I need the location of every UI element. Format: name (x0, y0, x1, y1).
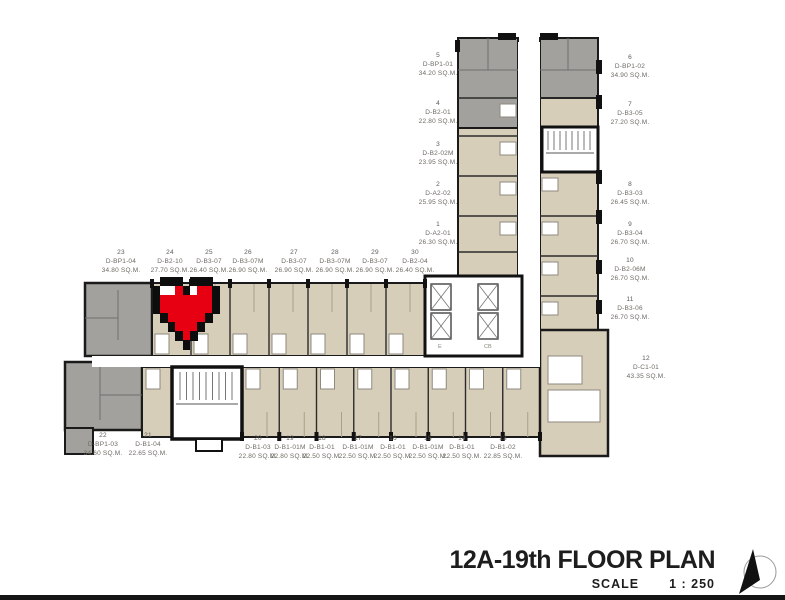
unit-no: 22 (71, 432, 135, 441)
core-secondary-label: CB (484, 344, 492, 350)
unit-code: D-B1-03 (226, 444, 290, 453)
unit-area: 23.95 SQ.M. (406, 159, 470, 168)
unit-no: 6 (598, 54, 662, 63)
unit-label: 30D-B2-0426.40 SQ.M. (383, 249, 447, 275)
unit-no: 1 (406, 221, 470, 230)
unit-label: 12D-C1-0143.35 SQ.M. (614, 355, 678, 381)
unit-no: 30 (383, 249, 447, 258)
bottom-divider (0, 595, 785, 600)
unit-area: 34.20 SQ.M. (406, 70, 470, 79)
unit-no: 20 (226, 435, 290, 444)
unit-code: D-BP1-02 (598, 63, 662, 72)
unit-area: 27.20 SQ.M. (598, 119, 662, 128)
unit-no: 9 (598, 221, 662, 230)
unit-label: 1D-A2-0126.30 SQ.M. (406, 221, 470, 247)
scale-label: SCALE (592, 577, 639, 591)
unit-22-block (65, 362, 142, 430)
unit-area: 22.80 SQ.M. (226, 453, 290, 462)
unit-label: 9D-B3-0426.70 SQ.M. (598, 221, 662, 247)
unit-label: 2D-A2-0225.95 SQ.M. (406, 181, 470, 207)
unit-label: 20D-B1-0322.80 SQ.M. (226, 435, 290, 461)
unit-no: 11 (598, 296, 662, 305)
unit-label: 11D-B3-0626.70 SQ.M. (598, 296, 662, 322)
unit-code: D-C1-01 (614, 364, 678, 373)
unit-label: 8D-B3-0326.45 SQ.M. (598, 181, 662, 207)
unit-area: 22.80 SQ.M. (406, 118, 470, 127)
unit-area: 26.70 SQ.M. (598, 275, 662, 284)
unit-label: 10D-B2-06M26.70 SQ.M. (598, 257, 662, 283)
unit-no: 3 (406, 141, 470, 150)
unit-area: 26.70 SQ.M. (598, 239, 662, 248)
core-elevator-label: E (438, 344, 442, 350)
selected-unit-heart-marker[interactable] (153, 277, 220, 349)
unit-code: D-BP1-01 (406, 61, 470, 70)
unit-code: D-B3-05 (598, 110, 662, 119)
page-title: 12A-19th FLOOR PLAN (430, 546, 715, 575)
unit-no: 8 (598, 181, 662, 190)
unit-label: 7D-B3-0527.20 SQ.M. (598, 101, 662, 127)
plan-title-block: 12A-19th FLOOR PLAN SCALE1 : 250 (430, 546, 715, 591)
unit-no: 5 (406, 52, 470, 61)
unit-area: 34.60 SQ.M. (71, 450, 135, 459)
unit-area: 25.95 SQ.M. (406, 199, 470, 208)
unit-no: 2 (406, 181, 470, 190)
unit-label: 4D-B2-0122.80 SQ.M. (406, 100, 470, 126)
unit-code: D-A2-01 (406, 230, 470, 239)
unit-code: D-B3-06 (598, 305, 662, 314)
north-arrow-icon (731, 547, 783, 599)
unit-area: 43.35 SQ.M. (614, 373, 678, 382)
unit-code: D-B2-06M (598, 266, 662, 275)
unit-code: D-B2-04 (383, 258, 447, 267)
unit-no: 10 (598, 257, 662, 266)
unit-area: 26.40 SQ.M. (383, 267, 447, 276)
stairwell-main (172, 367, 242, 439)
unit-area: 34.90 SQ.M. (598, 72, 662, 81)
unit-no: 4 (406, 100, 470, 109)
floor-plan-drawing (0, 0, 785, 600)
unit-label: 6D-BP1-0234.90 SQ.M. (598, 54, 662, 80)
unit-no: 7 (598, 101, 662, 110)
unit-code: D-B2-02M (406, 150, 470, 159)
unit-label: 22D-BP1-0334.60 SQ.M. (71, 432, 135, 458)
unit-area: 26.70 SQ.M. (598, 314, 662, 323)
floor-plan-page: E CB 1D-A2-0126.30 SQ.M.2D-A2-0225.95 SQ… (0, 0, 785, 600)
unit-code: D-B3-03 (598, 190, 662, 199)
unit-code: D-A2-02 (406, 190, 470, 199)
unit-area: 26.45 SQ.M. (598, 199, 662, 208)
horizontal-corridor (92, 356, 540, 367)
unit-area: 26.30 SQ.M. (406, 239, 470, 248)
unit-label: 5D-BP1-0134.20 SQ.M. (406, 52, 470, 78)
unit-code: D-B3-04 (598, 230, 662, 239)
unit-code: D-BP1-03 (71, 441, 135, 450)
unit-no: 12 (614, 355, 678, 364)
scale-value: 1 : 250 (669, 577, 715, 591)
unit-code: D-B2-01 (406, 109, 470, 118)
unit-label: 3D-B2-02M23.95 SQ.M. (406, 141, 470, 167)
